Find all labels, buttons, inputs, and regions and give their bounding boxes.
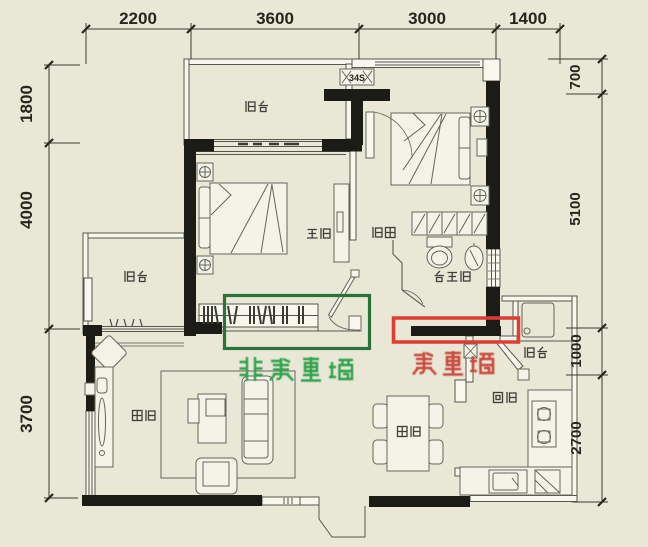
svg-text:2200: 2200 (119, 9, 157, 28)
svg-text:700: 700 (567, 64, 584, 89)
svg-text:34S: 34S (349, 73, 365, 83)
svg-text:3700: 3700 (17, 395, 36, 433)
svg-text:3000: 3000 (408, 9, 446, 28)
svg-text:1800: 1800 (17, 85, 36, 123)
svg-text:5100: 5100 (567, 192, 584, 225)
svg-text:1000: 1000 (568, 334, 585, 367)
svg-text:2700: 2700 (568, 421, 585, 454)
svg-text:1400: 1400 (509, 9, 547, 28)
svg-text:3600: 3600 (256, 9, 294, 28)
svg-text:4000: 4000 (17, 191, 36, 229)
